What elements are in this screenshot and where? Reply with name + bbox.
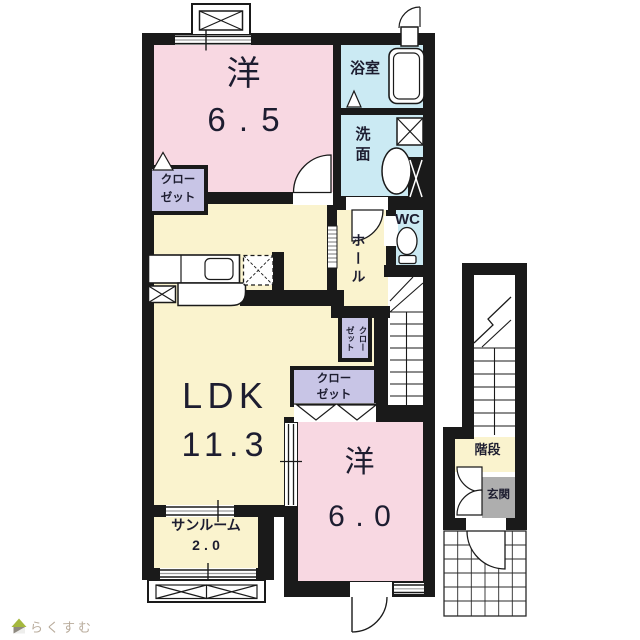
bathtub-icon xyxy=(389,49,424,104)
toilet-icon xyxy=(397,228,417,264)
closet2-bifold-icon xyxy=(294,403,376,422)
bedroom1-door-icon xyxy=(293,155,333,205)
closet1-line1: クロー xyxy=(161,174,196,186)
entrance-label: 玄関 xyxy=(482,489,515,502)
washroom-label: 洗面 xyxy=(353,126,370,166)
stairs-interior-icon xyxy=(390,277,423,405)
bedroom1-size-label: 6.5 xyxy=(154,102,333,138)
sunroom-name-label: サンルーム xyxy=(154,518,258,533)
stairs-label: 階段 xyxy=(460,443,515,457)
closet-bedroom1-label: クロー ゼット xyxy=(148,172,208,208)
watermark-text: らくすむ xyxy=(30,617,94,636)
closet2-line2: ゼット xyxy=(317,389,352,401)
kitchen-icon xyxy=(149,255,274,306)
bath-vent-icon xyxy=(399,7,420,46)
bedroom2-name-label: 洋 xyxy=(296,446,423,479)
bedroom1-name-label: 洋 xyxy=(154,56,333,93)
balcony-bottom-icon xyxy=(148,580,265,602)
bath-door-icon xyxy=(347,91,361,107)
ldk-hall-slider-icon xyxy=(328,226,338,268)
window-bedroom2-icon xyxy=(394,583,424,594)
closet1-door-icon xyxy=(153,153,173,171)
pipe-space-x-icon xyxy=(410,160,422,197)
closet-hall-col-left: ゼット xyxy=(345,326,355,352)
balcony-top-icon xyxy=(192,4,250,35)
bathroom-label: 浴室 xyxy=(341,61,389,78)
washer-pan-icon xyxy=(397,118,423,145)
stairs-exterior-icon xyxy=(474,297,515,435)
hall-label: ホール xyxy=(350,233,365,287)
bedroom2-size-label: 6.0 xyxy=(296,500,423,533)
closet-hall-label: クロー ゼット xyxy=(341,319,369,359)
porch-icon xyxy=(444,518,526,616)
sunroom-size-label: 2.0 xyxy=(154,538,258,553)
closet1-line2: ゼット xyxy=(161,192,196,204)
bedroom2-door-icon xyxy=(350,582,392,632)
sink-icon xyxy=(382,148,411,194)
closet2-line1: クロー xyxy=(317,373,352,385)
plan-linework xyxy=(0,0,640,640)
ldk-size-label: 11.3 xyxy=(140,427,305,464)
watermark-logo-icon xyxy=(12,619,27,634)
wc-label: WC xyxy=(390,212,425,229)
closet-hall-col-right: クロー xyxy=(358,326,368,352)
ldk-name-label: LDK xyxy=(140,376,305,416)
entry-door-icon xyxy=(457,467,482,515)
floor-plan: 洋 6.5 浴室 洗面 WC ホール クロー ゼット クロー ゼット クロー ゼ… xyxy=(0,0,640,640)
